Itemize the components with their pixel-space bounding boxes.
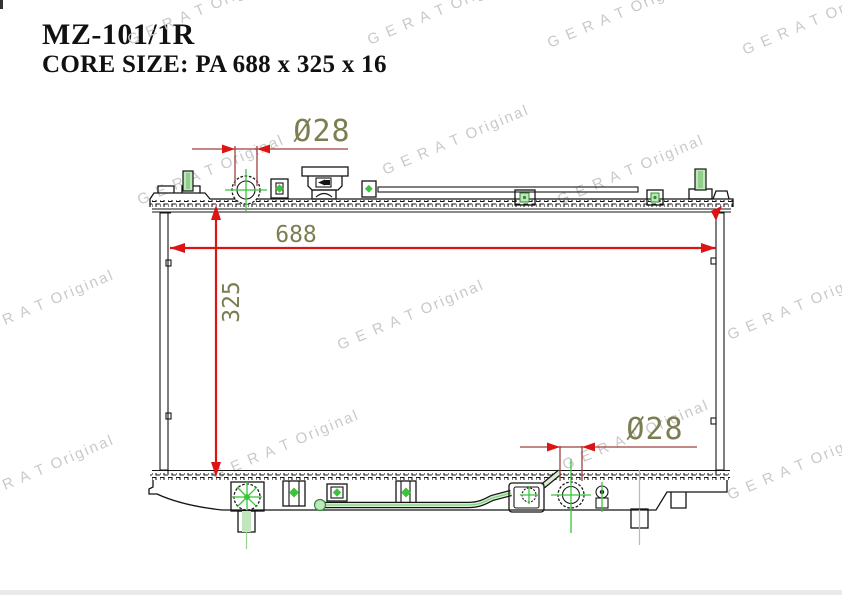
pipe-end-fitting <box>315 500 326 511</box>
inlet-diameter-value: Ø28 <box>293 114 350 149</box>
watermark-text: G E R A T Original <box>210 406 362 483</box>
watermark-text: G E R A T Original <box>0 431 117 508</box>
core-height-value: 325 <box>219 281 245 323</box>
pipe-fitting-block <box>509 483 544 512</box>
top-tank-clip <box>362 181 376 197</box>
dimension-core-height: 325 <box>211 205 245 477</box>
left-side-plate <box>160 213 171 474</box>
bottom-tank-clip <box>327 484 347 501</box>
watermark-text: G E R A T Original <box>555 131 707 208</box>
mounting-pin-top-left <box>183 171 193 191</box>
mounting-pin-top-right <box>695 169 706 190</box>
watermark-text: G E R A T Original <box>725 266 842 343</box>
scan-edge-strip <box>0 590 842 595</box>
mounting-peg-bottom-right <box>631 470 648 545</box>
watermark-text: G E R A T Original <box>545 0 697 52</box>
mounting-peg-bottom-left <box>238 511 255 549</box>
watermark-text: G E R A T Original <box>740 0 842 59</box>
technical-drawing-page: MZ-101/1R CORE SIZE: PA 688 x 325 x 16 G… <box>0 0 842 595</box>
outlet-diameter-value: Ø28 <box>626 412 683 447</box>
watermark-text: G E R A T Original <box>380 101 532 178</box>
overflow-tank-bracket <box>302 167 348 199</box>
watermark-text: G E R A T Original <box>0 266 117 343</box>
watermark-text: G E R A T Original <box>335 276 487 353</box>
watermark-text: G E R A T Original <box>725 426 842 503</box>
bottom-tank-step <box>671 492 686 508</box>
top-tank <box>150 167 733 212</box>
watermark-text: G E R A T Original <box>365 0 517 49</box>
bottom-serrated-edge <box>150 473 730 480</box>
top-tank-clip <box>271 179 288 198</box>
bottom-tank-clip <box>283 481 305 506</box>
radiator-body <box>149 167 733 549</box>
watermark-text: G E R A T Original <box>135 131 287 208</box>
dimension-core-width: 688 <box>170 222 716 253</box>
top-tank-right-tab <box>713 191 729 199</box>
core-width-value: 688 <box>275 222 317 248</box>
watermark-text: G E R A T Original <box>125 0 277 49</box>
drain-plug-housing <box>231 482 264 512</box>
right-side-plate <box>711 213 724 474</box>
radiator-drawing: G E R A T Original G E R A T Original G … <box>0 0 842 595</box>
drain-valve <box>596 482 608 512</box>
